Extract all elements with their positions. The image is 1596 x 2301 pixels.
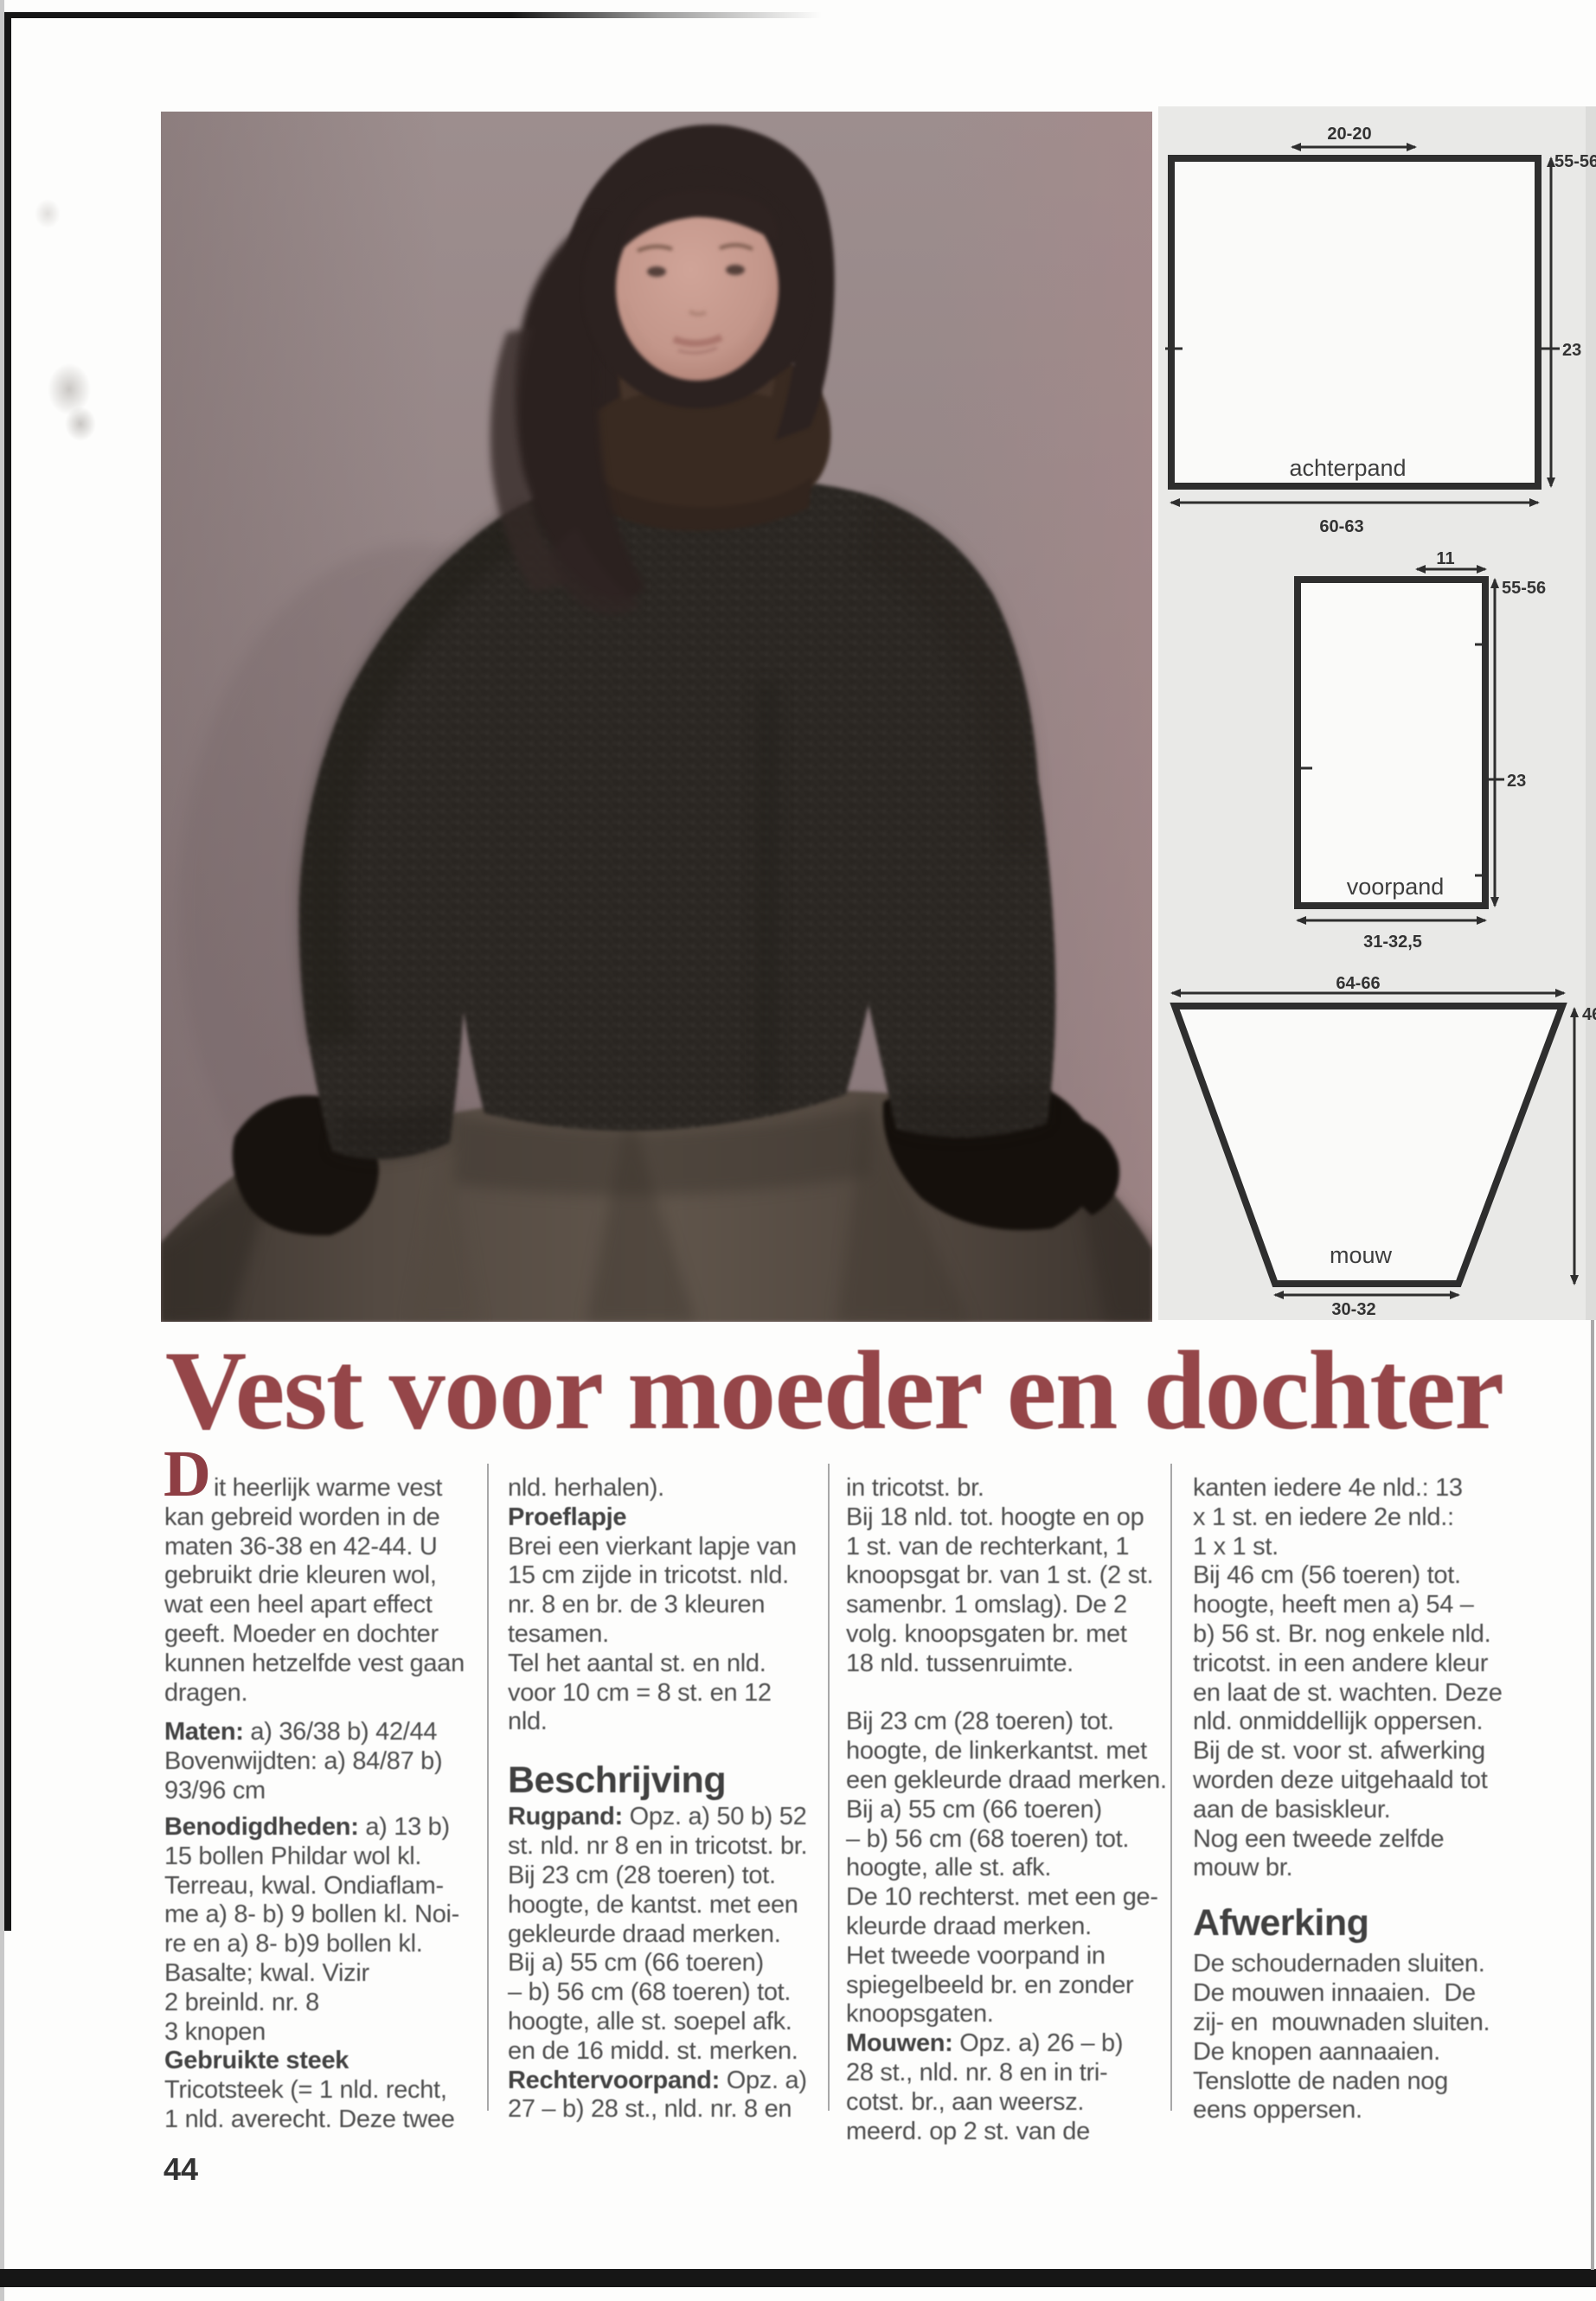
svg-text:30-32: 30-32 <box>1331 1300 1375 1319</box>
svg-text:55-56: 55-56 <box>1502 579 1546 598</box>
svg-text:60-63: 60-63 <box>1319 517 1363 536</box>
svg-text:23: 23 <box>1562 341 1581 360</box>
svg-text:voorpand: voorpand <box>1347 874 1445 900</box>
svg-text:20-20: 20-20 <box>1327 125 1371 144</box>
svg-text:64-66: 64-66 <box>1336 974 1380 993</box>
svg-text:mouw: mouw <box>1330 1242 1393 1268</box>
svg-text:11: 11 <box>1436 549 1454 568</box>
svg-text:23: 23 <box>1507 772 1526 791</box>
svg-text:31-32,5: 31-32,5 <box>1363 933 1422 952</box>
svg-text:achterpand: achterpand <box>1289 455 1406 481</box>
svg-text:46: 46 <box>1582 1005 1596 1024</box>
svg-text:55-56: 55-56 <box>1554 152 1596 171</box>
